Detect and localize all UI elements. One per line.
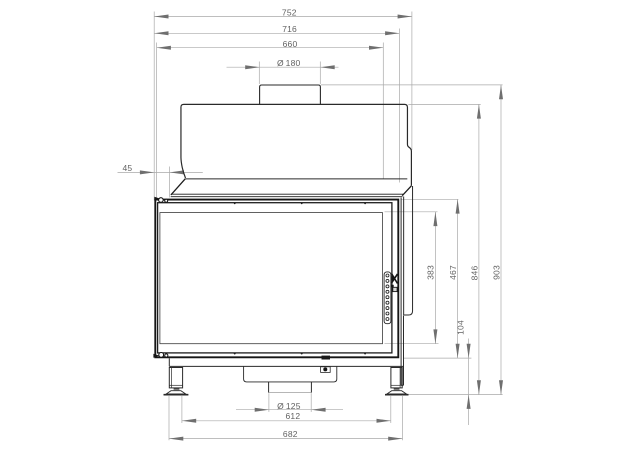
svg-text:846: 846 — [470, 266, 480, 281]
svg-text:383: 383 — [425, 265, 435, 280]
svg-text:752: 752 — [282, 7, 297, 17]
svg-text:467: 467 — [448, 265, 458, 280]
svg-text:45: 45 — [122, 163, 132, 173]
svg-text:Ø 180: Ø 180 — [277, 58, 301, 68]
svg-text:682: 682 — [283, 429, 298, 439]
svg-text:612: 612 — [286, 411, 301, 421]
svg-text:716: 716 — [282, 24, 297, 34]
svg-text:Ø 125: Ø 125 — [277, 401, 301, 411]
svg-text:903: 903 — [492, 265, 502, 280]
svg-text:104: 104 — [455, 320, 465, 335]
svg-text:660: 660 — [283, 39, 298, 49]
